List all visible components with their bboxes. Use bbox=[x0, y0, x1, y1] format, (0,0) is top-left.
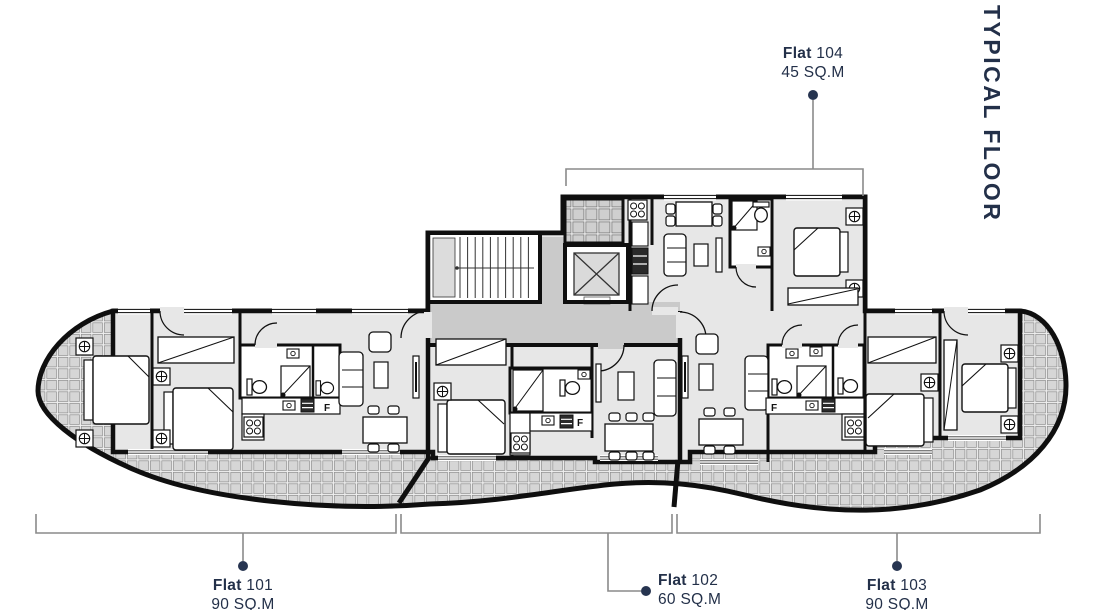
dining-table bbox=[699, 419, 743, 445]
stove-icon bbox=[244, 417, 263, 437]
floor-plan-page: F F bbox=[0, 0, 1105, 610]
flat102-dot bbox=[641, 586, 651, 596]
chair-icon bbox=[609, 452, 620, 460]
flat101-number: 101 bbox=[246, 577, 273, 594]
bed-symbol bbox=[93, 356, 149, 424]
flat104-label: Flat 104 45 SQ.M bbox=[748, 44, 878, 82]
sink-icon bbox=[283, 401, 295, 410]
plant-table-icon bbox=[846, 208, 863, 225]
coffee-table bbox=[699, 364, 713, 390]
floor-plan-drawing: F F bbox=[0, 0, 1105, 610]
kitchen-counter bbox=[632, 222, 648, 246]
coffee-table bbox=[694, 244, 708, 266]
side-table bbox=[618, 372, 634, 400]
sink-icon bbox=[810, 347, 822, 356]
page-title: TYPICAL FLOOR bbox=[978, 5, 1005, 222]
flat103-dot bbox=[892, 561, 902, 571]
sink-icon bbox=[578, 370, 590, 379]
sofa bbox=[664, 234, 686, 276]
flat102-bracket bbox=[401, 514, 672, 533]
flat103-bracket bbox=[677, 514, 1040, 533]
plant-table-icon bbox=[76, 338, 93, 355]
bed-symbol bbox=[866, 394, 924, 446]
stove-icon bbox=[511, 433, 530, 453]
flat102-area: 60 SQ.M bbox=[658, 590, 721, 609]
dining-table bbox=[605, 424, 653, 451]
dishwasher-icon bbox=[560, 415, 573, 428]
chair-icon bbox=[724, 408, 735, 416]
flat103-area: 90 SQ.M bbox=[832, 595, 962, 610]
flat103-label: Flat 103 90 SQ.M bbox=[832, 576, 962, 610]
stove-icon bbox=[628, 200, 647, 220]
toilet-icon bbox=[560, 380, 580, 396]
chair-icon bbox=[368, 406, 379, 414]
elevator bbox=[565, 245, 628, 304]
bed-symbol bbox=[962, 364, 1008, 412]
flat101-label: Flat 101 90 SQ.M bbox=[178, 576, 308, 610]
plant-table-icon bbox=[1001, 416, 1018, 433]
flat104-area: 45 SQ.M bbox=[748, 63, 878, 82]
chair-icon bbox=[609, 413, 620, 421]
bed-pillow bbox=[924, 398, 933, 442]
chair-icon bbox=[704, 408, 715, 416]
fridge-icon bbox=[632, 248, 648, 274]
bed-symbol bbox=[447, 400, 505, 454]
dishwasher-icon bbox=[822, 399, 835, 412]
kitchen-counter bbox=[632, 276, 648, 304]
staircase bbox=[428, 233, 540, 302]
chair-icon bbox=[643, 452, 654, 460]
toilet-icon bbox=[838, 378, 858, 394]
chair-icon bbox=[388, 444, 399, 452]
chair-icon bbox=[666, 216, 675, 226]
fridge-label: F bbox=[771, 403, 777, 414]
plant-table-icon bbox=[153, 368, 170, 385]
chair-icon bbox=[704, 446, 715, 454]
chair-icon bbox=[368, 444, 379, 452]
tv-unit bbox=[716, 238, 722, 272]
chair-icon bbox=[643, 413, 654, 421]
flat103-name: Flat bbox=[867, 577, 896, 594]
plant-table-icon bbox=[153, 430, 170, 447]
plant-table-icon bbox=[1001, 345, 1018, 362]
flat102-leader bbox=[608, 533, 641, 591]
chair-icon bbox=[626, 452, 637, 460]
stove-icon bbox=[845, 417, 864, 437]
sofa bbox=[745, 356, 768, 410]
armchair bbox=[369, 332, 391, 352]
bed-pillow bbox=[438, 404, 447, 452]
coffee-table bbox=[374, 362, 388, 388]
chair-icon bbox=[724, 446, 735, 454]
chair-icon bbox=[713, 204, 722, 214]
flat104-number: 104 bbox=[816, 45, 843, 62]
toilet-icon bbox=[247, 379, 267, 395]
sink-icon bbox=[786, 349, 798, 358]
sink-icon bbox=[542, 416, 554, 425]
bed-symbol bbox=[173, 388, 233, 450]
chair-icon bbox=[713, 216, 722, 226]
entrance-balcony bbox=[565, 199, 623, 243]
chair-icon bbox=[666, 204, 675, 214]
bed-pillow bbox=[1008, 368, 1016, 408]
dishwasher-icon bbox=[301, 399, 314, 412]
sink-icon bbox=[806, 401, 818, 410]
flat102-name: Flat bbox=[658, 572, 687, 589]
dining-table bbox=[676, 202, 712, 226]
flat104-bracket bbox=[566, 169, 863, 196]
sofa bbox=[339, 352, 363, 406]
flat103-number: 103 bbox=[900, 577, 927, 594]
flat101-area: 90 SQ.M bbox=[178, 595, 308, 610]
fridge-label: F bbox=[324, 403, 330, 414]
sink-icon bbox=[287, 349, 299, 358]
flat104-dot bbox=[808, 90, 818, 100]
tv-unit bbox=[596, 364, 601, 402]
toilet-icon bbox=[772, 379, 792, 395]
flat101-name: Flat bbox=[213, 577, 242, 594]
sink-icon bbox=[758, 247, 770, 256]
plant-table-icon bbox=[434, 383, 451, 400]
bed-pillow bbox=[840, 232, 848, 272]
flat104-name: Flat bbox=[783, 45, 812, 62]
toilet-icon bbox=[753, 202, 769, 222]
toilet-icon bbox=[316, 381, 334, 395]
armchair bbox=[696, 334, 718, 354]
chair-icon bbox=[388, 406, 399, 414]
chair-icon bbox=[626, 413, 637, 421]
plant-table-icon bbox=[76, 430, 93, 447]
lobby-strip bbox=[540, 237, 565, 302]
dining-table bbox=[363, 417, 407, 443]
plant-table-icon bbox=[921, 374, 938, 391]
fridge-label: F bbox=[577, 418, 583, 429]
flat102-label: Flat 102 60 SQ.M bbox=[658, 571, 721, 609]
sofa bbox=[654, 360, 676, 416]
flat102-number: 102 bbox=[691, 572, 718, 589]
bed-pillow bbox=[84, 360, 93, 420]
bed-symbol bbox=[794, 228, 840, 276]
flat101-bracket bbox=[36, 514, 396, 533]
flat101-dot bbox=[238, 561, 248, 571]
